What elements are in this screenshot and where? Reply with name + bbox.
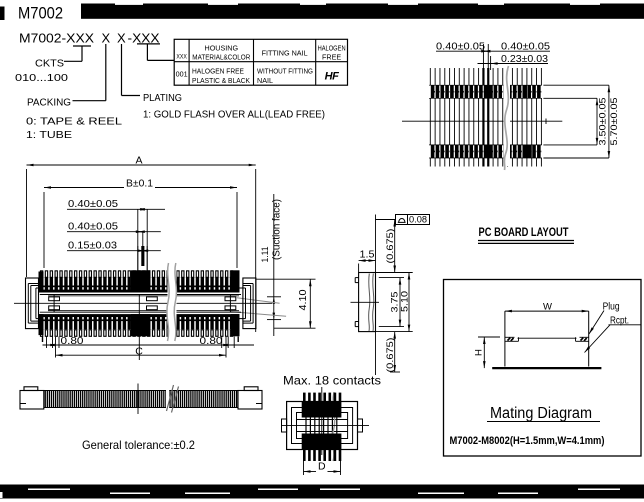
svg-text:B±0.1: B±0.1 bbox=[126, 178, 153, 190]
svg-text:0: TAPE & REEL: 0: TAPE & REEL bbox=[26, 116, 122, 128]
svg-text:5.10: 5.10 bbox=[399, 291, 410, 312]
svg-text:0.08: 0.08 bbox=[409, 214, 427, 224]
svg-text:M7002-M8002(H=1.5mm,W=4.1mm): M7002-M8002(H=1.5mm,W=4.1mm) bbox=[450, 435, 605, 447]
svg-text:HALOGEN: HALOGEN bbox=[318, 44, 346, 53]
svg-text:HALOGEN FREE: HALOGEN FREE bbox=[192, 67, 244, 76]
svg-text:0.40±0.05: 0.40±0.05 bbox=[501, 41, 550, 53]
svg-text:CKTS: CKTS bbox=[35, 58, 64, 70]
svg-text:HOUSING: HOUSING bbox=[205, 44, 239, 53]
svg-text:A: A bbox=[135, 155, 142, 167]
svg-text:0.40±0.05: 0.40±0.05 bbox=[68, 221, 118, 233]
svg-text:(0.675): (0.675) bbox=[385, 229, 395, 264]
svg-text:C: C bbox=[135, 346, 143, 358]
svg-text:4.10: 4.10 bbox=[298, 289, 309, 310]
svg-text:FREE: FREE bbox=[322, 53, 341, 62]
svg-text:5.70±0.05: 5.70±0.05 bbox=[609, 98, 620, 146]
svg-text:D: D bbox=[318, 461, 326, 473]
svg-text:Plug: Plug bbox=[603, 302, 620, 313]
svg-text:1.5: 1.5 bbox=[360, 249, 375, 261]
svg-text:0.40±0.05: 0.40±0.05 bbox=[436, 41, 485, 53]
svg-text:1.11: 1.11 bbox=[260, 247, 271, 263]
svg-text:HF: HF bbox=[325, 71, 339, 83]
svg-text:PACKING: PACKING bbox=[27, 97, 71, 109]
svg-text:X: X bbox=[117, 31, 126, 46]
svg-text:Max. 18 contacts: Max. 18 contacts bbox=[283, 374, 381, 388]
svg-text:FITTING NAIL: FITTING NAIL bbox=[262, 49, 308, 58]
svg-text:NAIL: NAIL bbox=[257, 76, 273, 85]
svg-text:0.40±0.05: 0.40±0.05 bbox=[68, 198, 118, 210]
svg-text:W: W bbox=[543, 302, 552, 313]
svg-text:3.50±0.05: 3.50±0.05 bbox=[597, 98, 608, 146]
svg-text:0.80: 0.80 bbox=[61, 335, 84, 347]
svg-text:XXX: XXX bbox=[176, 54, 187, 61]
svg-text:0.15±0.03: 0.15±0.03 bbox=[68, 240, 117, 252]
svg-text:X: X bbox=[102, 31, 111, 46]
svg-text:PLASTIC & BLACK: PLASTIC & BLACK bbox=[192, 76, 250, 85]
svg-text:PLATING: PLATING bbox=[143, 92, 182, 104]
svg-text:(Suction face): (Suction face) bbox=[272, 199, 283, 260]
svg-text:M7002: M7002 bbox=[18, 5, 63, 23]
svg-text:1: GOLD FLASH OVER ALL(LEAD FR: 1: GOLD FLASH OVER ALL(LEAD FREE) bbox=[143, 109, 325, 121]
svg-text:WITHOUT FITTING: WITHOUT FITTING bbox=[257, 67, 313, 76]
svg-text:MATERIAL&COLOR: MATERIAL&COLOR bbox=[192, 53, 250, 62]
svg-text:M7002-XXX: M7002-XXX bbox=[19, 31, 94, 46]
svg-text:1: TUBE: 1: TUBE bbox=[26, 129, 72, 141]
svg-text:-XXX: -XXX bbox=[128, 31, 160, 46]
svg-text:010...100: 010...100 bbox=[15, 72, 68, 84]
svg-text:Mating Diagram: Mating Diagram bbox=[490, 405, 592, 422]
svg-text:General tolerance:±0.2: General tolerance:±0.2 bbox=[82, 438, 195, 452]
svg-text:PC BOARD LAYOUT: PC BOARD LAYOUT bbox=[479, 225, 570, 239]
svg-text:(0.675): (0.675) bbox=[385, 338, 395, 373]
svg-text:H: H bbox=[474, 349, 485, 356]
svg-text:001: 001 bbox=[176, 70, 188, 79]
svg-text:0.80: 0.80 bbox=[200, 335, 223, 347]
